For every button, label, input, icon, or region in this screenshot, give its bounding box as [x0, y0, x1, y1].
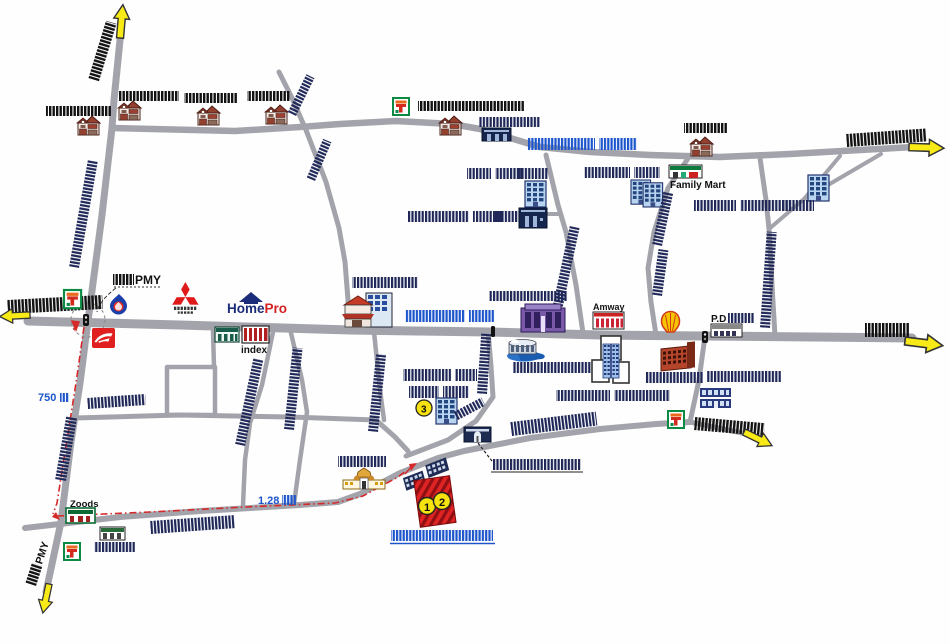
svg-text:Amway: Amway [593, 302, 625, 312]
svg-text:PMY: PMY [135, 273, 161, 287]
svg-text:index: index [241, 345, 268, 356]
svg-text:P.D: P.D [711, 314, 726, 325]
svg-text:Family Mart: Family Mart [670, 180, 726, 191]
svg-text:1.28: 1.28 [258, 495, 279, 507]
svg-text:750: 750 [38, 392, 56, 404]
svg-text:3: 3 [421, 405, 427, 416]
svg-text:1: 1 [424, 502, 430, 514]
svg-text:HomePro: HomePro [227, 301, 287, 316]
svg-text:2: 2 [439, 497, 445, 509]
